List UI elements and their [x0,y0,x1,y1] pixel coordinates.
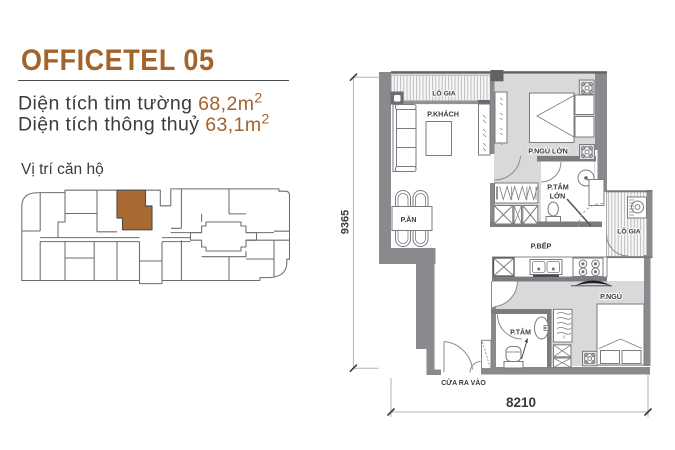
svg-text:LÔ GIA: LÔ GIA [617,227,641,236]
svg-text:P.KHÁCH: P.KHÁCH [427,110,459,119]
svg-text:LỚN: LỚN [550,192,566,201]
svg-text:P.TẮM: P.TẮM [510,328,531,337]
svg-text:P.NGỦ LỚN: P.NGỦ LỚN [528,147,568,156]
svg-text:9365: 9365 [340,210,352,234]
svg-text:P.BẾP: P.BẾP [531,241,552,251]
svg-text:P.ĂN: P.ĂN [401,215,417,224]
svg-text:8210: 8210 [506,395,536,410]
svg-text:CỬA RA VÀO: CỬA RA VÀO [441,378,486,387]
svg-text:P.TẮM: P.TẮM [547,183,568,192]
svg-text:LÔ GIA: LÔ GIA [432,89,456,98]
svg-text:P.NGỦ: P.NGỦ [600,292,622,301]
